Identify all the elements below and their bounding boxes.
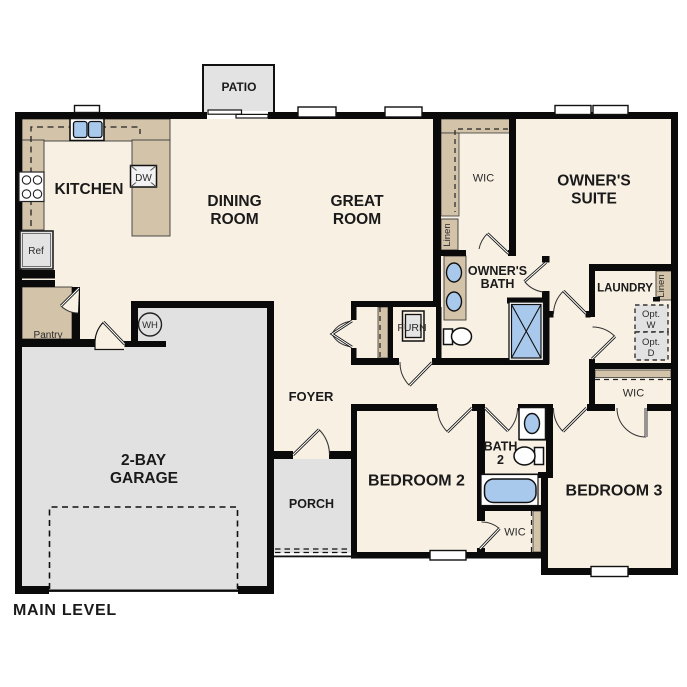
svg-text:BATH: BATH — [484, 440, 518, 454]
svg-text:GREAT: GREAT — [330, 193, 384, 210]
svg-text:PATIO: PATIO — [222, 80, 257, 94]
svg-text:OWNER'S: OWNER'S — [557, 173, 630, 190]
svg-text:BATH: BATH — [481, 277, 515, 291]
svg-text:2-BAY: 2-BAY — [121, 452, 167, 469]
svg-text:WH: WH — [142, 320, 158, 331]
svg-text:OWNER'S: OWNER'S — [468, 264, 527, 278]
svg-text:Opt.: Opt. — [642, 337, 660, 348]
svg-text:Linen: Linen — [656, 274, 667, 297]
svg-text:DINING: DINING — [207, 193, 261, 210]
svg-text:Opt.: Opt. — [642, 309, 660, 320]
svg-text:FOYER: FOYER — [289, 389, 334, 404]
svg-text:W: W — [647, 320, 656, 331]
svg-text:WIC: WIC — [473, 173, 494, 185]
svg-text:FURN: FURN — [397, 322, 426, 334]
svg-text:SUITE: SUITE — [571, 191, 617, 208]
svg-text:Linen: Linen — [442, 223, 453, 246]
svg-text:GARAGE: GARAGE — [110, 470, 178, 487]
svg-text:ROOM: ROOM — [333, 211, 381, 228]
svg-text:WIC: WIC — [623, 388, 644, 400]
svg-text:DW: DW — [135, 173, 152, 184]
svg-text:2: 2 — [497, 453, 504, 467]
svg-text:D: D — [648, 348, 655, 359]
svg-text:ROOM: ROOM — [210, 211, 258, 228]
svg-text:BEDROOM 3: BEDROOM 3 — [566, 483, 663, 500]
svg-text:Ref: Ref — [28, 246, 44, 257]
svg-text:MAIN LEVEL: MAIN LEVEL — [13, 602, 117, 619]
svg-text:BEDROOM 2: BEDROOM 2 — [368, 473, 465, 490]
svg-text:KITCHEN: KITCHEN — [55, 181, 124, 198]
svg-text:LAUNDRY: LAUNDRY — [597, 283, 653, 295]
svg-text:WIC: WIC — [504, 527, 525, 539]
svg-text:PORCH: PORCH — [289, 497, 334, 511]
